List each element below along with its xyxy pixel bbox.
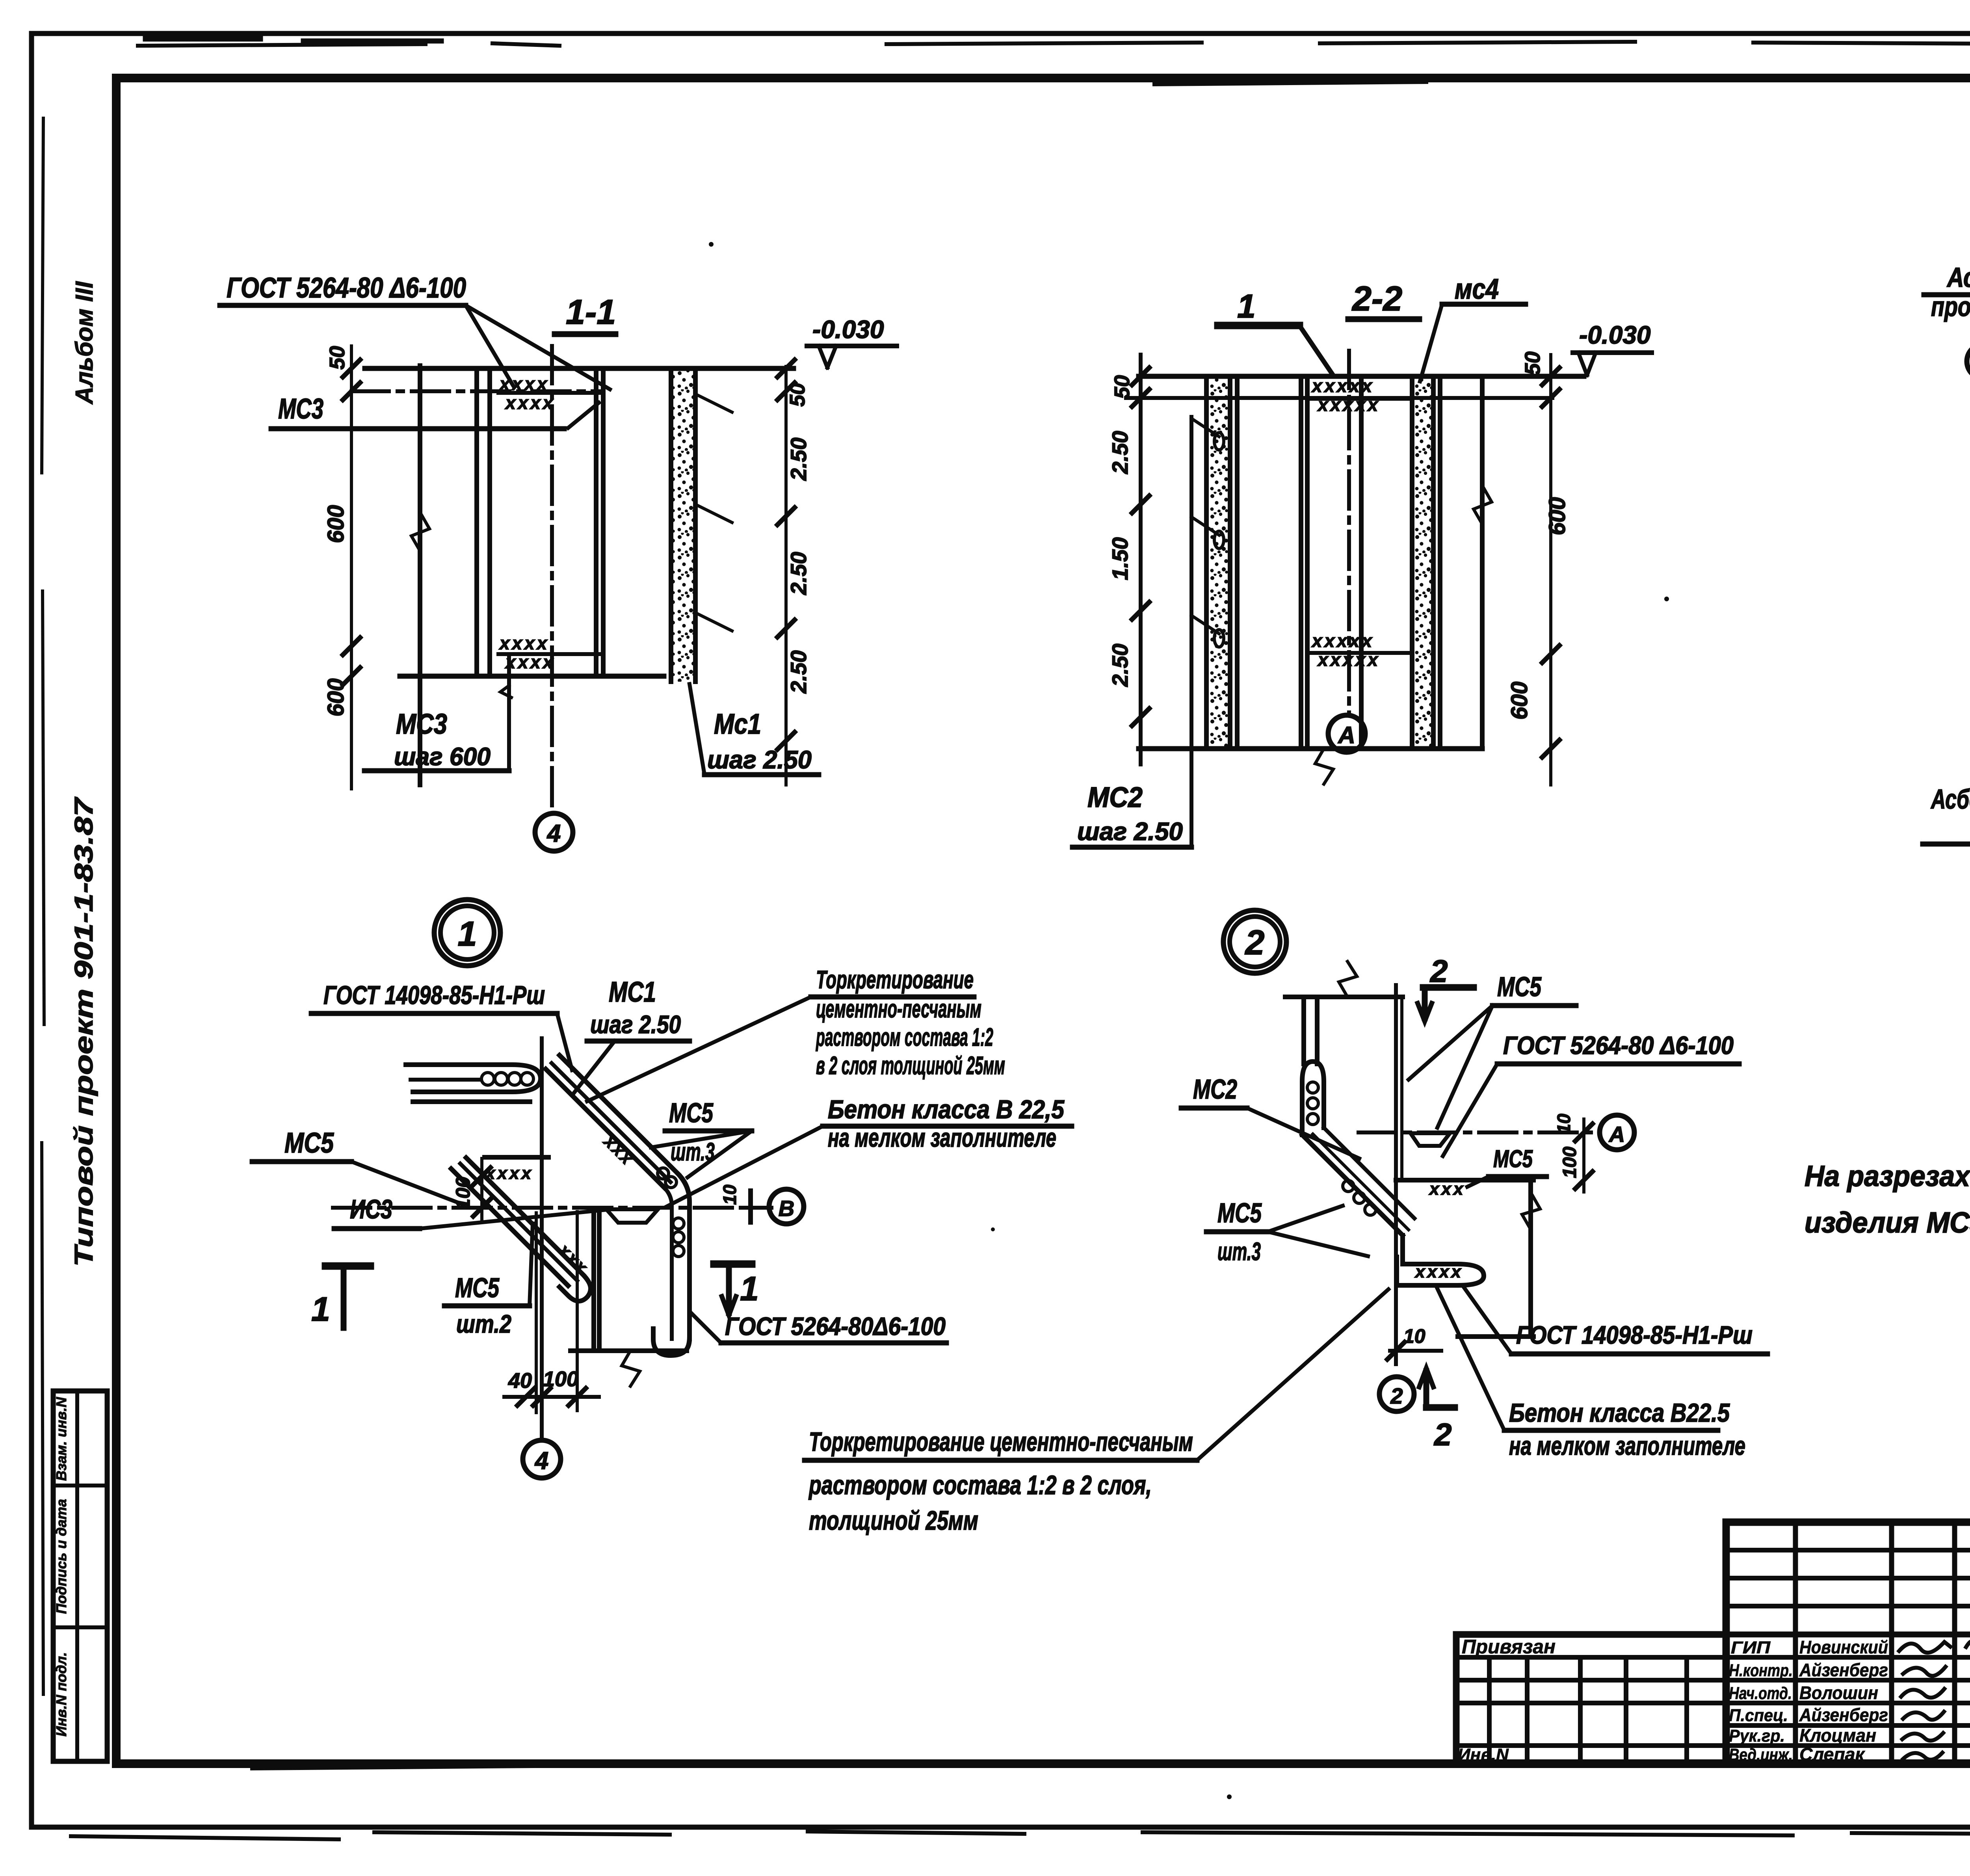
svg-text:xxx: xxx	[1429, 1179, 1465, 1199]
svg-text:10: 10	[1554, 1114, 1574, 1134]
svg-text:2-2: 2-2	[1351, 279, 1402, 318]
svg-text:1.50: 1.50	[1108, 537, 1132, 580]
svg-text:Айзенберг: Айзенберг	[1799, 1660, 1888, 1680]
svg-text:1: 1	[1237, 288, 1256, 325]
svg-text:шт.2: шт.2	[456, 1310, 511, 1338]
svg-text:600: 600	[323, 679, 349, 717]
svg-text:xxxx: xxxx	[498, 374, 549, 394]
svg-text:Волошин: Волошин	[1799, 1683, 1878, 1703]
svg-text:2: 2	[1245, 923, 1265, 962]
svg-text:толщиной 25мм: толщиной 25мм	[809, 1506, 978, 1536]
svg-text:Инв.N подл.: Инв.N подл.	[53, 1652, 69, 1737]
svg-text:МС2: МС2	[1087, 782, 1143, 813]
svg-text:Взам. инв.N: Взам. инв.N	[53, 1397, 69, 1481]
svg-text:МС5: МС5	[455, 1272, 500, 1303]
svg-text:Нач.отд.: Нач.отд.	[1729, 1684, 1792, 1703]
svg-text:МС5: МС5	[669, 1097, 714, 1128]
svg-text:1: 1	[311, 1290, 330, 1328]
svg-text:100: 100	[1559, 1147, 1580, 1178]
svg-text:2: 2	[1390, 1383, 1403, 1408]
svg-text:шт.3: шт.3	[1217, 1237, 1261, 1266]
svg-text:в 2 слоя толщиной 25мм: в 2 слоя толщиной 25мм	[816, 1051, 1005, 1080]
svg-text:xxxx: xxxx	[504, 392, 555, 413]
svg-text:ГОСТ 5264-80Δ6-100: ГОСТ 5264-80Δ6-100	[725, 1312, 946, 1341]
svg-text:50: 50	[1521, 351, 1544, 375]
svg-text:4: 4	[546, 820, 561, 847]
svg-text:мс4: мс4	[1455, 273, 1499, 305]
svg-text:600: 600	[1544, 497, 1570, 535]
svg-text:1: 1	[740, 1270, 759, 1308]
svg-text:А: А	[1337, 722, 1355, 748]
svg-text:50: 50	[1110, 375, 1134, 399]
svg-text:ГОСТ 5264-80 Δ6-100: ГОСТ 5264-80 Δ6-100	[1503, 1031, 1734, 1060]
svg-text:Рук.гр.: Рук.гр.	[1729, 1726, 1785, 1746]
svg-text:Асбестоцементный: Асбестоцементный	[1931, 784, 1970, 814]
svg-text:ГОСТ 5264-80 Δ6-100: ГОСТ 5264-80 Δ6-100	[227, 272, 466, 304]
svg-text:раствором состава 1:2 в 2 с: раствором состава 1:2 в 2 слоя,	[808, 1470, 1152, 1500]
svg-text:xxxxx: xxxxx	[1311, 630, 1374, 651]
svg-text:Инв.N: Инв.N	[1458, 1745, 1509, 1764]
svg-text:Бетон класса В22.5: Бетон класса В22.5	[1509, 1398, 1730, 1427]
svg-text:А: А	[1608, 1122, 1625, 1147]
svg-text:600: 600	[323, 505, 349, 543]
svg-text:xxxx: xxxx	[498, 633, 549, 653]
svg-text:-0.030: -0.030	[1579, 321, 1650, 349]
svg-text:МС2: МС2	[1193, 1074, 1237, 1104]
svg-text:На разрезах 1-1; 2-2 соедините: На разрезах 1-1; 2-2 соединительные	[1805, 1160, 1970, 1192]
svg-text:1: 1	[458, 914, 477, 953]
svg-text:П.спец.: П.спец.	[1729, 1706, 1788, 1725]
svg-text:МС5: МС5	[284, 1127, 334, 1159]
svg-text:2.50: 2.50	[786, 552, 811, 595]
svg-text:шаг 2.50: шаг 2.50	[707, 746, 812, 774]
svg-text:на мелком заполнителе: на мелком заполнителе	[1509, 1431, 1745, 1460]
svg-text:МС1: МС1	[609, 976, 656, 1008]
svg-text:10: 10	[719, 1184, 740, 1205]
svg-text:Типовой проект 901-1-83.87: Типовой проект 901-1-83.87	[69, 796, 98, 1267]
svg-text:изделия МС5 условно не показ: изделия МС5 условно не показаны.	[1805, 1206, 1970, 1239]
svg-text:Асбестовая прядь: Асбестовая прядь	[1946, 262, 1970, 293]
svg-text:ГОСТ 14098-85-Н1-Рш: ГОСТ 14098-85-Н1-Рш	[1516, 1321, 1753, 1349]
svg-text:Торкретирование цементно-пес: Торкретирование цементно-песчаным	[809, 1427, 1193, 1457]
svg-text:2: 2	[1429, 954, 1448, 989]
svg-text:Альбом III: Альбом III	[71, 281, 98, 405]
svg-text:В: В	[779, 1196, 794, 1221]
svg-text:4: 4	[534, 1447, 548, 1474]
svg-text:шаг 2.50: шаг 2.50	[1077, 817, 1183, 846]
svg-text:-0.030: -0.030	[812, 315, 884, 344]
svg-text:Подпись и дата: Подпись и дата	[53, 1499, 69, 1614]
svg-text:МС5: МС5	[1493, 1145, 1533, 1173]
svg-text:ГОСТ 14098-85-Н1-Рш: ГОСТ 14098-85-Н1-Рш	[323, 980, 545, 1010]
svg-text:xxxxx: xxxxx	[1311, 376, 1374, 396]
svg-text:2.50: 2.50	[786, 651, 811, 694]
svg-text:МС5: МС5	[1217, 1197, 1262, 1228]
svg-text:2: 2	[1433, 1417, 1452, 1452]
svg-text:50: 50	[325, 346, 349, 370]
svg-text:МС5: МС5	[1497, 971, 1542, 1002]
svg-text:МС3: МС3	[396, 708, 447, 740]
svg-text:МС3: МС3	[278, 393, 323, 425]
svg-text:Н.контр.: Н.контр.	[1729, 1661, 1793, 1680]
svg-text:Привязан: Привязан	[1462, 1636, 1556, 1658]
svg-text:Бетон класса В 22,5: Бетон класса В 22,5	[828, 1095, 1065, 1124]
svg-text:цементно-песчаным: цементно-песчаным	[816, 995, 981, 1023]
svg-text:ГИП: ГИП	[1731, 1638, 1771, 1657]
svg-text:шаг 600: шаг 600	[394, 742, 491, 771]
svg-text:Торкретирование: Торкретирование	[816, 965, 974, 994]
svg-text:xxxx: xxxx	[1414, 1262, 1463, 1281]
svg-text:шаг 2.50: шаг 2.50	[590, 1010, 681, 1039]
svg-text:2.50: 2.50	[1108, 644, 1132, 687]
svg-text:10: 10	[1403, 1325, 1425, 1347]
svg-text:Клоцман: Клоцман	[1799, 1725, 1876, 1746]
svg-text:Мс1: Мс1	[714, 708, 761, 740]
svg-text:1-1: 1-1	[566, 292, 616, 331]
svg-text:ИС3: ИС3	[350, 1194, 392, 1224]
svg-text:100: 100	[543, 1367, 578, 1391]
svg-text:Айзенберг: Айзенберг	[1799, 1705, 1888, 1725]
svg-text:50: 50	[786, 383, 809, 407]
svg-text:Вед.инж.: Вед.инж.	[1729, 1745, 1793, 1764]
svg-text:Новинский: Новинский	[1799, 1637, 1888, 1657]
svg-text:2.50: 2.50	[786, 438, 811, 481]
svg-text:40: 40	[508, 1369, 532, 1393]
svg-text:600: 600	[1507, 682, 1532, 720]
svg-text:2.50: 2.50	[1108, 431, 1132, 474]
svg-text:раствором состава 1:2: раствором состава 1:2	[816, 1023, 993, 1051]
svg-text:Слепак: Слепак	[1799, 1744, 1866, 1764]
